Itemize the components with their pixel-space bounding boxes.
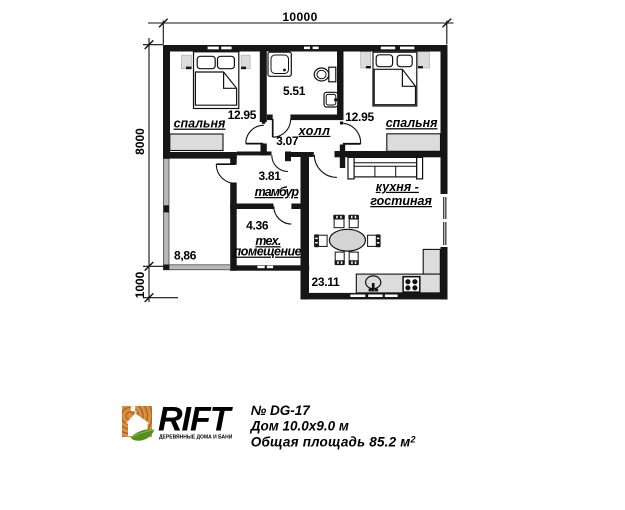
- svg-text:12.95: 12.95: [228, 108, 257, 122]
- svg-text:Общая площадь 85.2 м2: Общая площадь 85.2 м2: [251, 435, 416, 450]
- svg-text:8000: 8000: [133, 128, 147, 155]
- svg-text:№ DG-17: № DG-17: [251, 403, 311, 418]
- svg-text:1000: 1000: [133, 271, 147, 298]
- svg-text:12.95: 12.95: [345, 110, 374, 124]
- svg-text:спальня: спальня: [174, 117, 226, 131]
- svg-text:3.07: 3.07: [276, 134, 299, 148]
- svg-text:помещение: помещение: [234, 245, 302, 259]
- svg-text:холл: холл: [298, 124, 331, 138]
- svg-text:Дом 10.0х9.0 м: Дом 10.0х9.0 м: [250, 419, 349, 434]
- svg-text:5.51: 5.51: [283, 84, 306, 98]
- svg-text:ДЕРЕВЯННЫЕ ДОМА И БАНИ: ДЕРЕВЯННЫЕ ДОМА И БАНИ: [159, 435, 233, 441]
- svg-text:гостиная: гостиная: [370, 194, 432, 208]
- svg-text:4.36: 4.36: [246, 219, 269, 233]
- svg-text:тамбур: тамбур: [255, 185, 300, 199]
- svg-text:RIFT: RIFT: [158, 400, 234, 438]
- svg-text:3.81: 3.81: [259, 169, 282, 183]
- svg-text:спальня: спальня: [386, 116, 438, 130]
- svg-text:23.11: 23.11: [312, 275, 340, 289]
- svg-text:10000: 10000: [282, 10, 317, 24]
- svg-text:8,86: 8,86: [174, 249, 197, 263]
- svg-text:кухня -: кухня -: [376, 180, 419, 194]
